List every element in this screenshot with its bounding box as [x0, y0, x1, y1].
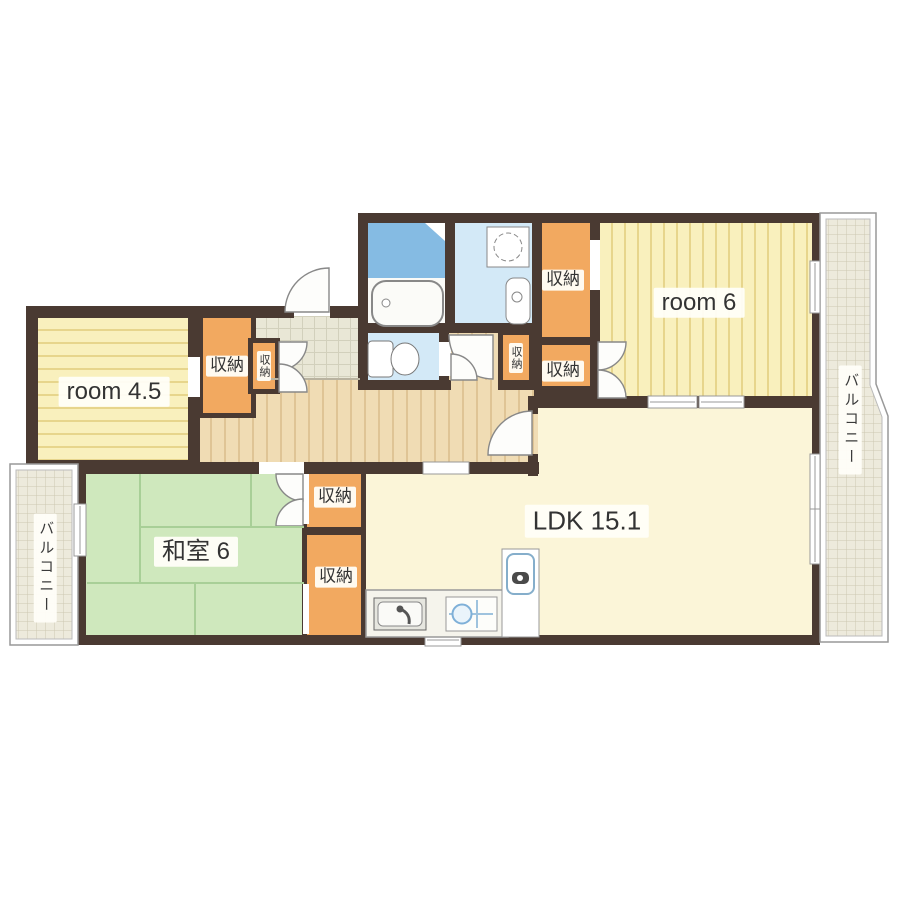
wall-segment [26, 306, 38, 472]
wall-segment [445, 213, 455, 328]
wall-segment [330, 306, 360, 318]
balcony-right-label: バルコニー [839, 366, 862, 475]
storage-label: 収納 [314, 487, 356, 508]
wall-segment [76, 462, 539, 474]
wall-segment [26, 306, 294, 318]
wall-segment [532, 213, 542, 390]
japanese-room-label: 和室 6 [154, 537, 238, 567]
bathtub-zone [368, 278, 445, 323]
storage-label-vertical: 収納 [509, 343, 523, 373]
wall-segment [76, 635, 820, 645]
wall-segment [812, 213, 820, 645]
wall-segment [439, 333, 449, 382]
wall-segment [358, 323, 542, 333]
washroom-floor [455, 223, 532, 323]
storage-label: 収納 [542, 270, 584, 291]
floor-plan: room 4.5 room 6 LDK 15.1 和室 6 収納 収納 収納 収… [0, 0, 900, 900]
wall-segment [528, 396, 538, 414]
ldk-floor-main [366, 474, 812, 637]
wall-segment [590, 213, 600, 406]
wall-segment [188, 396, 200, 462]
ldk-label: LDK 15.1 [525, 505, 649, 538]
storage-label: 収納 [542, 361, 584, 382]
storage-label: 収納 [206, 356, 248, 377]
toilet-room-floor [368, 333, 439, 380]
room-6-label: room 6 [654, 288, 745, 318]
storage-label-vertical: 収納 [257, 351, 271, 381]
wall-segment [358, 213, 368, 390]
balcony-left-label: バルコニー [34, 514, 57, 623]
wall-segment [358, 380, 451, 390]
wall-segment [534, 396, 820, 408]
wall-segment [188, 306, 200, 358]
wall-segment [358, 213, 820, 223]
ldk-floor-upper [537, 408, 812, 474]
bathroom-shower-floor [368, 223, 445, 278]
wall-segment [76, 462, 86, 645]
room-4.5-label: room 4.5 [59, 377, 170, 407]
storage-label: 収納 [315, 567, 357, 588]
